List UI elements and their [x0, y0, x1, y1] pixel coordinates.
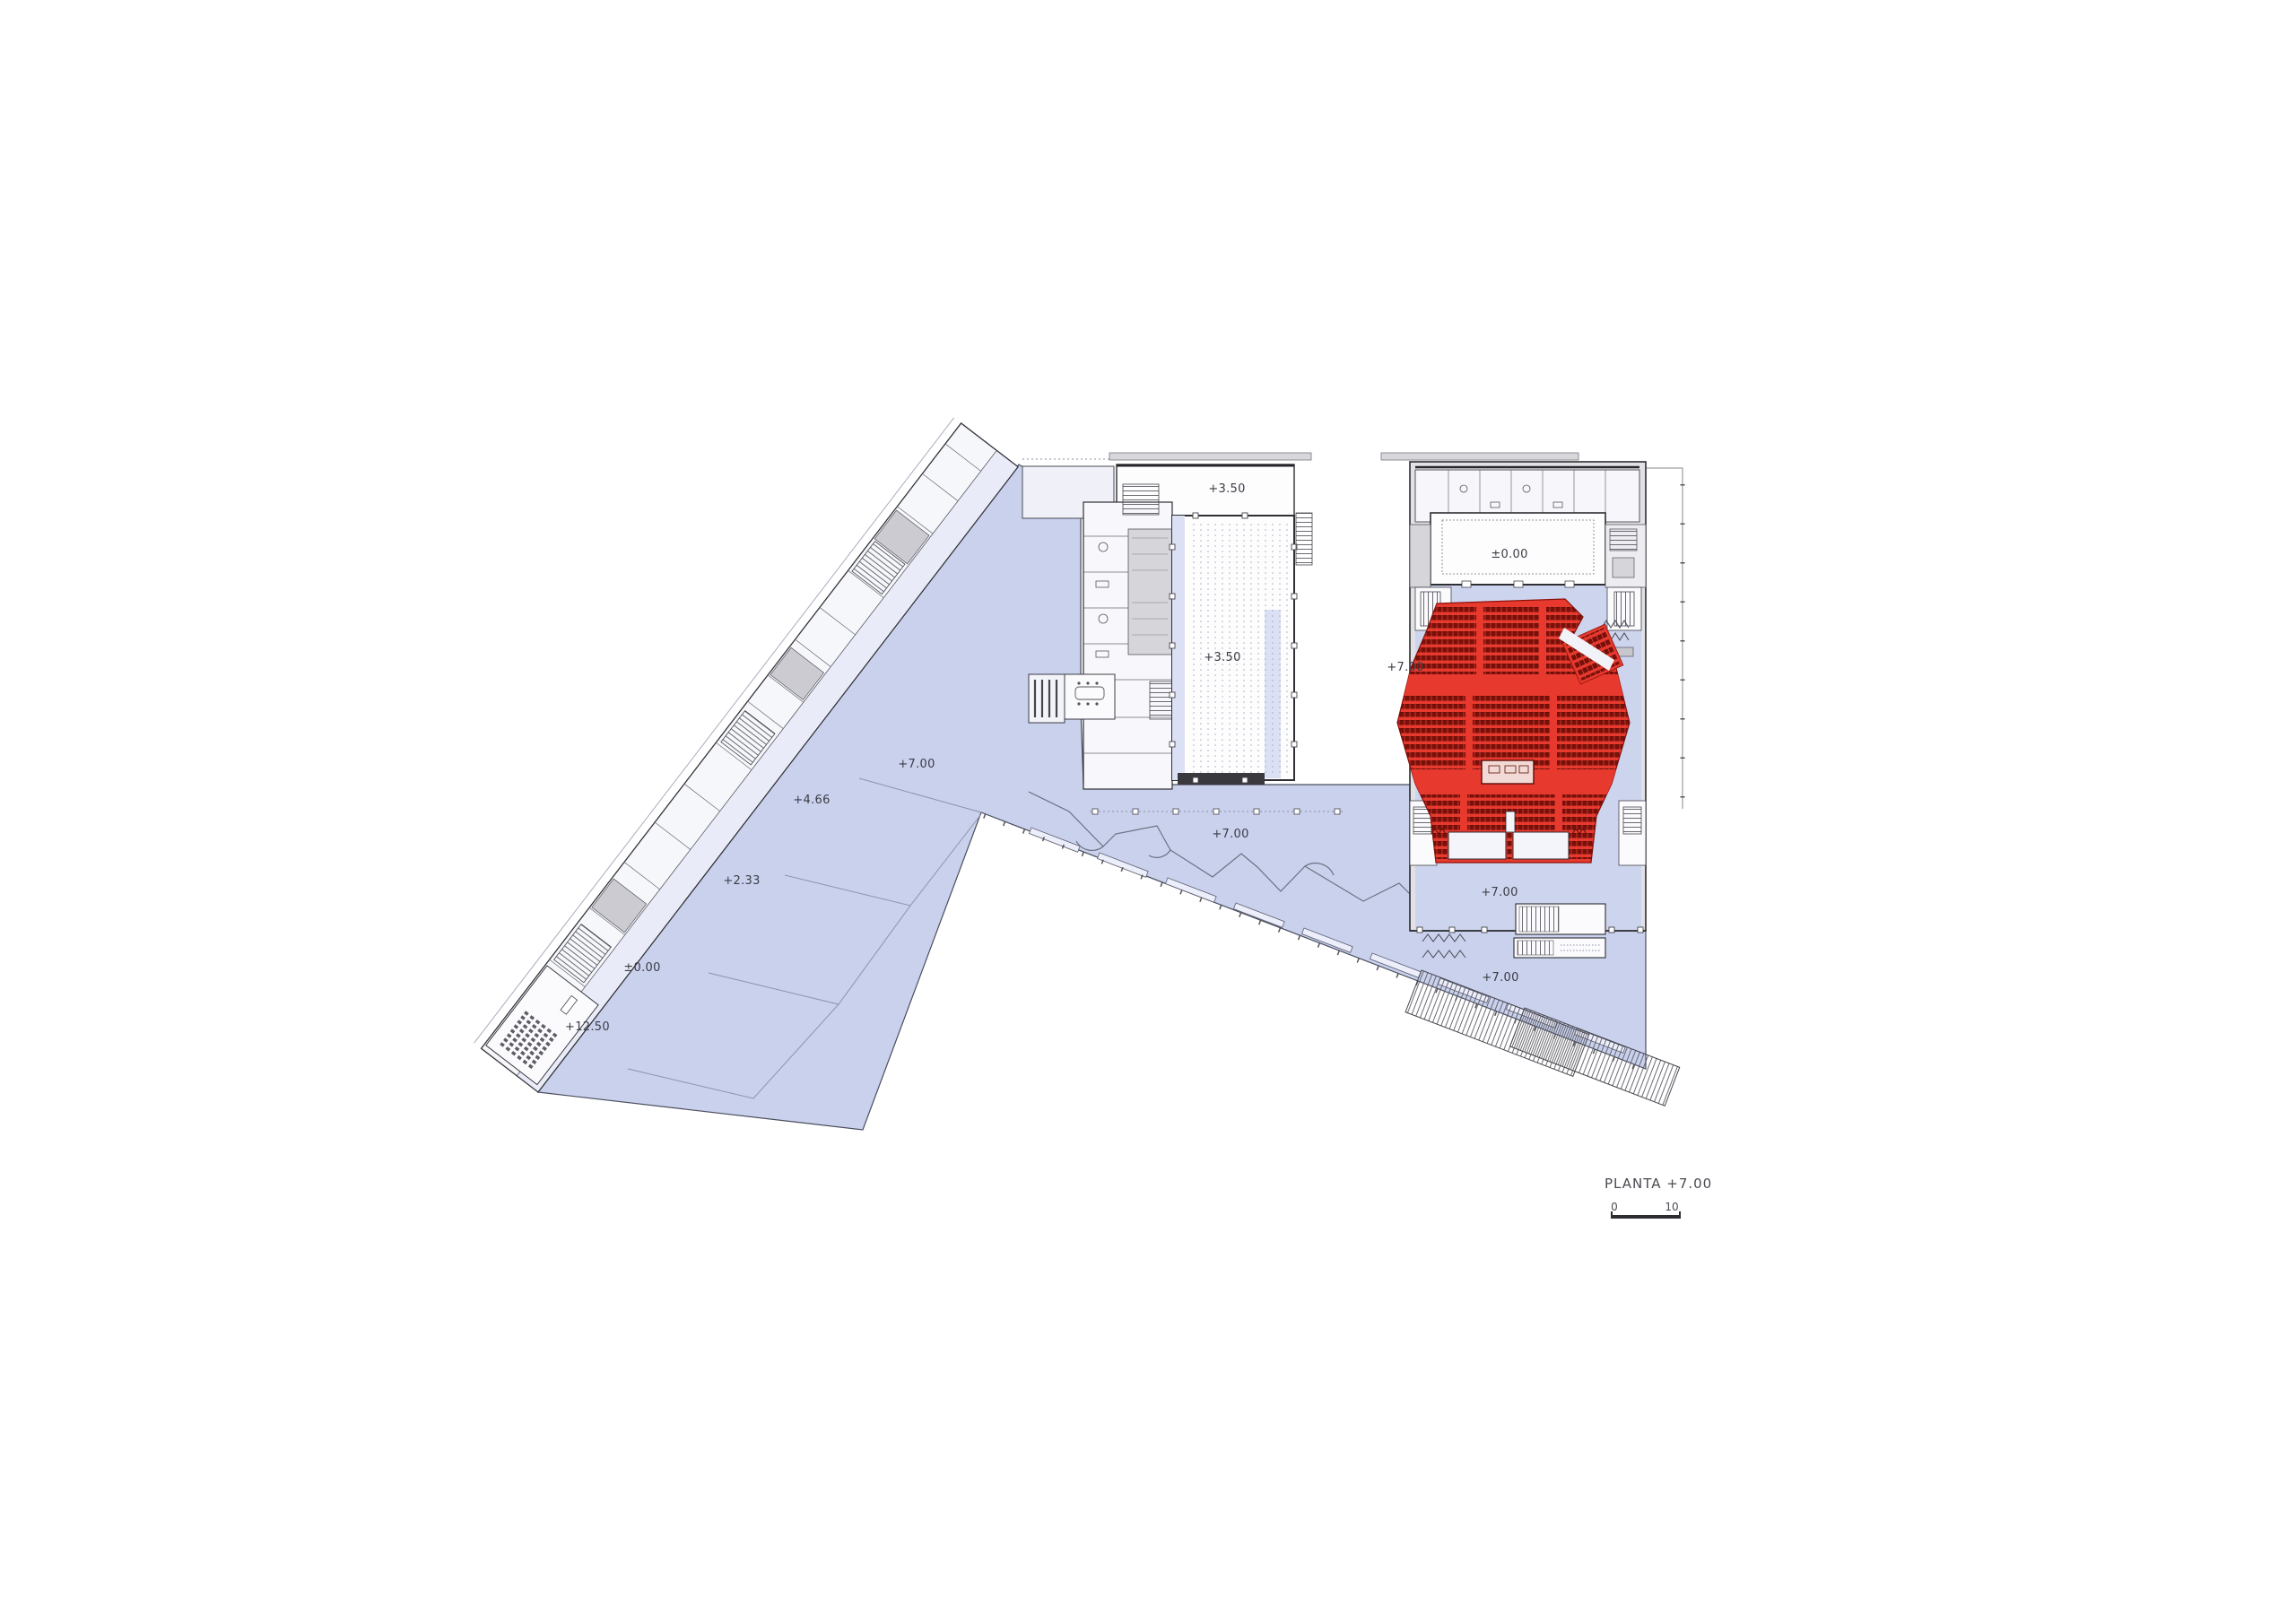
- entrance-slats: [1029, 674, 1065, 723]
- central-canopy: [1109, 453, 1311, 460]
- hall-floor-texture: [1188, 520, 1289, 776]
- level-label-aud-left: +7.00: [1387, 661, 1423, 674]
- floor-plan-svg: +3.50 +3.50 ±0.00 +7.00 +7.00 +4.66 +2.3…: [0, 0, 2296, 1623]
- office-strip: [1083, 484, 1172, 789]
- scale-end: 10: [1665, 1201, 1678, 1213]
- level-label-ramp-466: +4.66: [793, 794, 830, 807]
- east-roof-edge: [1646, 468, 1683, 809]
- office-stair-top: [1123, 484, 1159, 515]
- level-label-plaza-left: +7.00: [898, 758, 935, 771]
- stage-east-pocket: [1605, 525, 1646, 587]
- level-label-stage: ±0.00: [1491, 548, 1527, 561]
- title-block: PLANTA +7.00 0 10: [1605, 1176, 1712, 1219]
- auditorium-building: [1381, 453, 1683, 958]
- level-label-foyer: +7.00: [1481, 886, 1518, 899]
- hall-east-stair: [1296, 513, 1312, 565]
- level-label-top-strip: +3.50: [1208, 482, 1245, 496]
- plan-title: PLANTA +7.00: [1605, 1176, 1712, 1192]
- level-label-ramp-000: ±0.00: [623, 961, 660, 975]
- level-label-ramp-233: +2.33: [723, 874, 760, 888]
- escalator-block: [1514, 904, 1605, 958]
- level-label-plaza-center: +7.00: [1212, 828, 1248, 841]
- scale-start: 0: [1611, 1201, 1618, 1213]
- rehearsal-hall: [1170, 513, 1312, 785]
- hall-south-core: [1178, 773, 1265, 785]
- level-label-ramp-1250: +12.50: [565, 1020, 610, 1034]
- toilet-core: [1128, 529, 1172, 655]
- level-label-hall: +3.50: [1204, 651, 1240, 664]
- office-stair-bottom: [1150, 681, 1172, 719]
- meeting-room: [1065, 674, 1115, 719]
- floor-plan-page: +3.50 +3.50 ±0.00 +7.00 +7.00 +4.66 +2.3…: [0, 0, 2296, 1623]
- stage-west-pocket: [1410, 525, 1431, 587]
- control-booth: [1482, 760, 1534, 784]
- level-label-plaza-bottom: +7.00: [1482, 971, 1518, 985]
- auditorium-canopy: [1381, 453, 1578, 460]
